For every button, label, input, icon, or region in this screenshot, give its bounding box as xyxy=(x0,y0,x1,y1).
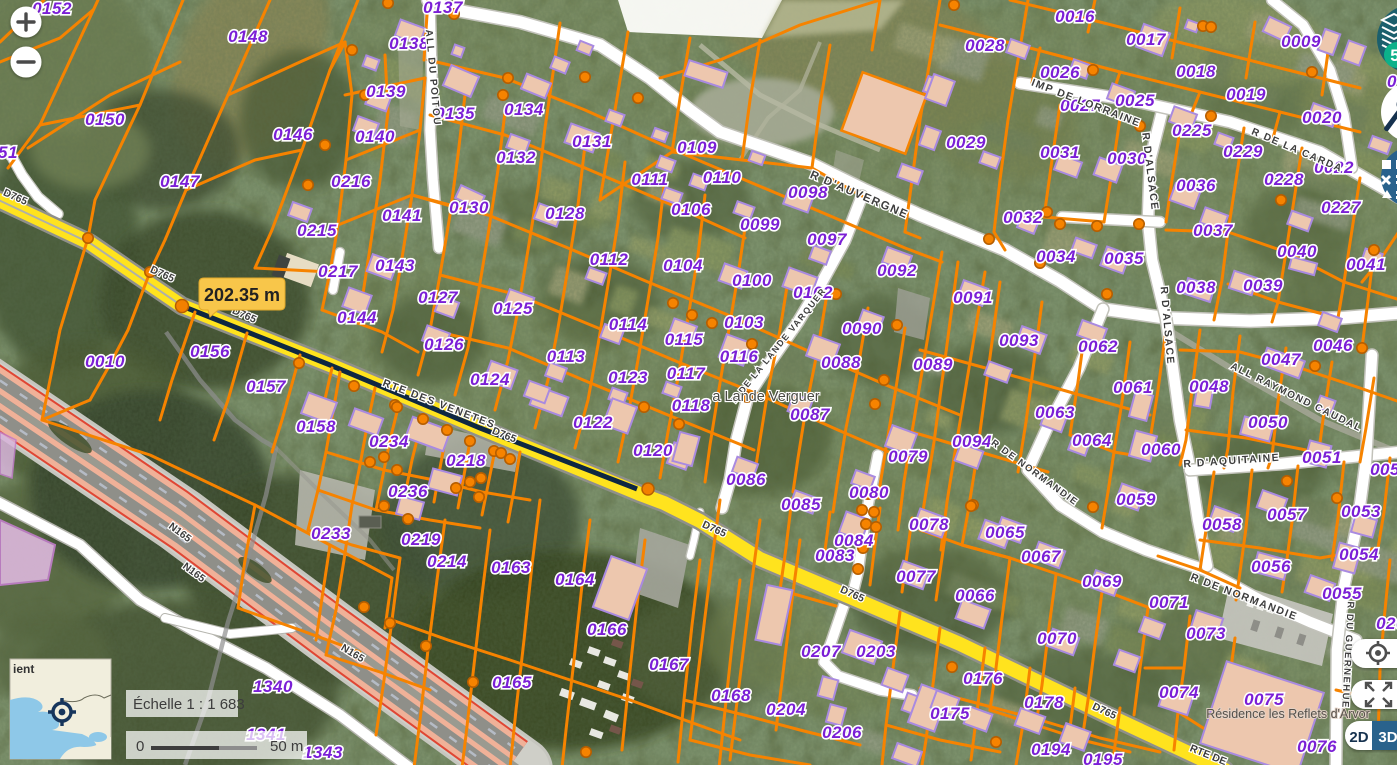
svg-text:0217: 0217 xyxy=(318,262,359,281)
svg-text:0176: 0176 xyxy=(963,669,1003,688)
svg-text:0109: 0109 xyxy=(677,138,717,157)
svg-text:0214: 0214 xyxy=(427,552,467,571)
svg-text:ient: ient xyxy=(13,662,34,676)
svg-text:0157: 0157 xyxy=(246,377,287,396)
svg-text:0114: 0114 xyxy=(609,315,648,334)
svg-text:0117: 0117 xyxy=(667,364,707,383)
svg-text:1340: 1340 xyxy=(253,677,293,696)
svg-text:0165: 0165 xyxy=(492,673,532,692)
svg-text:0047: 0047 xyxy=(1261,350,1302,369)
svg-text:202.35 m: 202.35 m xyxy=(204,285,280,305)
svg-text:a Lande Verguer: a Lande Verguer xyxy=(712,389,819,405)
svg-text:0195: 0195 xyxy=(1083,750,1123,765)
svg-text:0110: 0110 xyxy=(703,168,742,187)
svg-text:0087: 0087 xyxy=(790,405,831,424)
svg-text:0147: 0147 xyxy=(160,172,201,191)
svg-text:0103: 0103 xyxy=(724,313,764,332)
svg-text:0086: 0086 xyxy=(726,470,766,489)
svg-text:50 m: 50 m xyxy=(270,738,303,755)
svg-text:0016: 0016 xyxy=(1055,7,1095,26)
svg-text:0059: 0059 xyxy=(1116,490,1156,509)
svg-text:0071: 0071 xyxy=(1149,593,1189,612)
svg-text:0115: 0115 xyxy=(665,330,704,349)
svg-text:0104: 0104 xyxy=(663,256,703,275)
svg-text:0066: 0066 xyxy=(955,586,995,605)
svg-text:0020: 0020 xyxy=(1302,108,1342,127)
svg-text:0078: 0078 xyxy=(909,515,949,534)
svg-text:0070: 0070 xyxy=(1037,629,1077,648)
svg-text:0164: 0164 xyxy=(555,570,595,589)
svg-text:0090: 0090 xyxy=(842,319,882,338)
svg-text:0144: 0144 xyxy=(337,308,377,327)
svg-text:Échelle 1 : 1 683: Échelle 1 : 1 683 xyxy=(133,696,245,713)
svg-text:0017: 0017 xyxy=(1126,30,1167,49)
svg-text:0028: 0028 xyxy=(965,36,1005,55)
svg-text:0234: 0234 xyxy=(369,432,409,451)
svg-text:2D: 2D xyxy=(1349,729,1368,746)
svg-text:0122: 0122 xyxy=(573,413,613,432)
svg-text:0124: 0124 xyxy=(470,370,510,389)
svg-text:0112: 0112 xyxy=(590,250,629,269)
svg-text:0116: 0116 xyxy=(720,347,759,366)
svg-text:0175: 0175 xyxy=(930,704,970,723)
svg-text:0113: 0113 xyxy=(547,347,586,366)
svg-text:0031: 0031 xyxy=(1040,143,1080,162)
svg-text:0056: 0056 xyxy=(1251,557,1291,576)
svg-text:1343: 1343 xyxy=(303,743,343,762)
svg-text:0038: 0038 xyxy=(1176,278,1216,297)
svg-text:0094: 0094 xyxy=(952,432,992,451)
svg-text:0097: 0097 xyxy=(807,230,848,249)
svg-text:0019: 0019 xyxy=(1226,85,1266,104)
svg-text:0178: 0178 xyxy=(1024,693,1064,712)
svg-text:0: 0 xyxy=(136,738,144,755)
svg-text:0025: 0025 xyxy=(1115,91,1155,110)
svg-text:0120: 0120 xyxy=(633,441,673,460)
svg-text:0132: 0132 xyxy=(496,148,536,167)
svg-text:0134: 0134 xyxy=(504,100,544,119)
svg-text:0036: 0036 xyxy=(1176,176,1216,195)
svg-text:0216: 0216 xyxy=(331,172,371,191)
svg-text:0204: 0204 xyxy=(766,700,806,719)
svg-text:0039: 0039 xyxy=(1243,276,1283,295)
svg-text:0077: 0077 xyxy=(896,567,937,586)
svg-text:0130: 0130 xyxy=(449,198,489,217)
svg-text:0018: 0018 xyxy=(1176,62,1216,81)
svg-text:020: 020 xyxy=(1376,614,1397,633)
svg-text:0139: 0139 xyxy=(366,82,406,101)
svg-text:0127: 0127 xyxy=(418,288,459,307)
svg-text:0030: 0030 xyxy=(1107,149,1147,168)
svg-text:0091: 0091 xyxy=(953,288,993,307)
svg-text:0225: 0225 xyxy=(1172,121,1212,140)
svg-text:0062: 0062 xyxy=(1078,337,1118,356)
svg-text:0236: 0236 xyxy=(388,482,428,501)
svg-text:0131: 0131 xyxy=(572,132,612,151)
svg-text:0034: 0034 xyxy=(1036,247,1076,266)
svg-text:5: 5 xyxy=(1390,46,1397,65)
svg-text:0052: 0052 xyxy=(1370,460,1397,479)
svg-text:0123: 0123 xyxy=(608,368,648,387)
svg-text:0194: 0194 xyxy=(1031,740,1071,759)
svg-text:0125: 0125 xyxy=(493,299,533,318)
svg-text:0229: 0229 xyxy=(1223,142,1263,161)
svg-text:0163: 0163 xyxy=(491,558,531,577)
svg-text:0203: 0203 xyxy=(856,642,896,661)
svg-text:0118: 0118 xyxy=(672,396,711,415)
svg-text:0040: 0040 xyxy=(1277,242,1317,261)
svg-text:0148: 0148 xyxy=(228,27,268,46)
svg-text:0215: 0215 xyxy=(297,221,337,240)
svg-text:51: 51 xyxy=(0,143,18,162)
svg-text:0111: 0111 xyxy=(631,170,668,189)
svg-text:0010: 0010 xyxy=(85,352,125,371)
svg-text:0061: 0061 xyxy=(1113,378,1153,397)
svg-text:0076: 0076 xyxy=(1297,737,1337,756)
svg-text:0032: 0032 xyxy=(1003,208,1043,227)
svg-text:0233: 0233 xyxy=(311,524,351,543)
svg-text:0137: 0137 xyxy=(423,0,464,17)
svg-text:0067: 0067 xyxy=(1021,547,1062,566)
svg-text:0156: 0156 xyxy=(190,342,230,361)
svg-text:0140: 0140 xyxy=(355,127,395,146)
svg-text:0138: 0138 xyxy=(389,34,429,53)
svg-text:0146: 0146 xyxy=(273,125,313,144)
svg-text:0037: 0037 xyxy=(1193,221,1234,240)
svg-text:3D: 3D xyxy=(1378,729,1397,746)
svg-text:0063: 0063 xyxy=(1035,403,1075,422)
svg-text:0079: 0079 xyxy=(888,447,928,466)
svg-text:0228: 0228 xyxy=(1264,170,1304,189)
svg-text:0073: 0073 xyxy=(1186,624,1226,643)
svg-text:0093: 0093 xyxy=(999,331,1039,350)
svg-text:0141: 0141 xyxy=(382,206,422,225)
svg-text:0100: 0100 xyxy=(732,271,772,290)
svg-text:0026: 0026 xyxy=(1040,63,1080,82)
svg-text:0158: 0158 xyxy=(296,417,336,436)
svg-text:0218: 0218 xyxy=(446,451,486,470)
svg-text:0060: 0060 xyxy=(1141,440,1181,459)
svg-text:0051: 0051 xyxy=(1302,448,1342,467)
svg-text:0092: 0092 xyxy=(877,261,917,280)
svg-text:0029: 0029 xyxy=(946,133,986,152)
svg-text:0227: 0227 xyxy=(1321,198,1362,217)
svg-text:0089: 0089 xyxy=(913,355,953,374)
svg-text:0009: 0009 xyxy=(1281,32,1321,51)
svg-text:0088: 0088 xyxy=(821,353,861,372)
svg-text:0057: 0057 xyxy=(1267,505,1308,524)
svg-text:0128: 0128 xyxy=(545,204,585,223)
svg-text:0058: 0058 xyxy=(1202,515,1242,534)
svg-text:0219: 0219 xyxy=(401,530,441,549)
svg-text:0143: 0143 xyxy=(375,256,415,275)
svg-text:0050: 0050 xyxy=(1248,413,1288,432)
svg-text:0083: 0083 xyxy=(815,546,855,565)
svg-text:0099: 0099 xyxy=(740,215,780,234)
svg-text:0080: 0080 xyxy=(849,483,889,502)
svg-text:0168: 0168 xyxy=(711,686,751,705)
svg-text:0065: 0065 xyxy=(985,523,1025,542)
svg-text:0167: 0167 xyxy=(649,655,690,674)
svg-text:0106: 0106 xyxy=(671,200,711,219)
svg-text:0150: 0150 xyxy=(85,110,125,129)
svg-text:0053: 0053 xyxy=(1341,502,1381,521)
svg-text:0126: 0126 xyxy=(424,335,464,354)
svg-text:0064: 0064 xyxy=(1072,431,1112,450)
svg-text:0041: 0041 xyxy=(1346,255,1386,274)
svg-text:0035: 0035 xyxy=(1104,249,1144,268)
svg-text:0069: 0069 xyxy=(1082,572,1122,591)
svg-text:0074: 0074 xyxy=(1159,683,1199,702)
svg-text:0207: 0207 xyxy=(801,642,842,661)
svg-text:Résidence les Reflets d'Arvor: Résidence les Reflets d'Arvor xyxy=(1206,707,1370,721)
svg-text:0206: 0206 xyxy=(822,723,862,742)
svg-text:0166: 0166 xyxy=(587,620,627,639)
svg-text:0048: 0048 xyxy=(1189,377,1229,396)
svg-text:0055: 0055 xyxy=(1322,584,1362,603)
svg-text:0085: 0085 xyxy=(781,495,821,514)
svg-text:0054: 0054 xyxy=(1339,545,1379,564)
svg-text:0046: 0046 xyxy=(1313,336,1353,355)
